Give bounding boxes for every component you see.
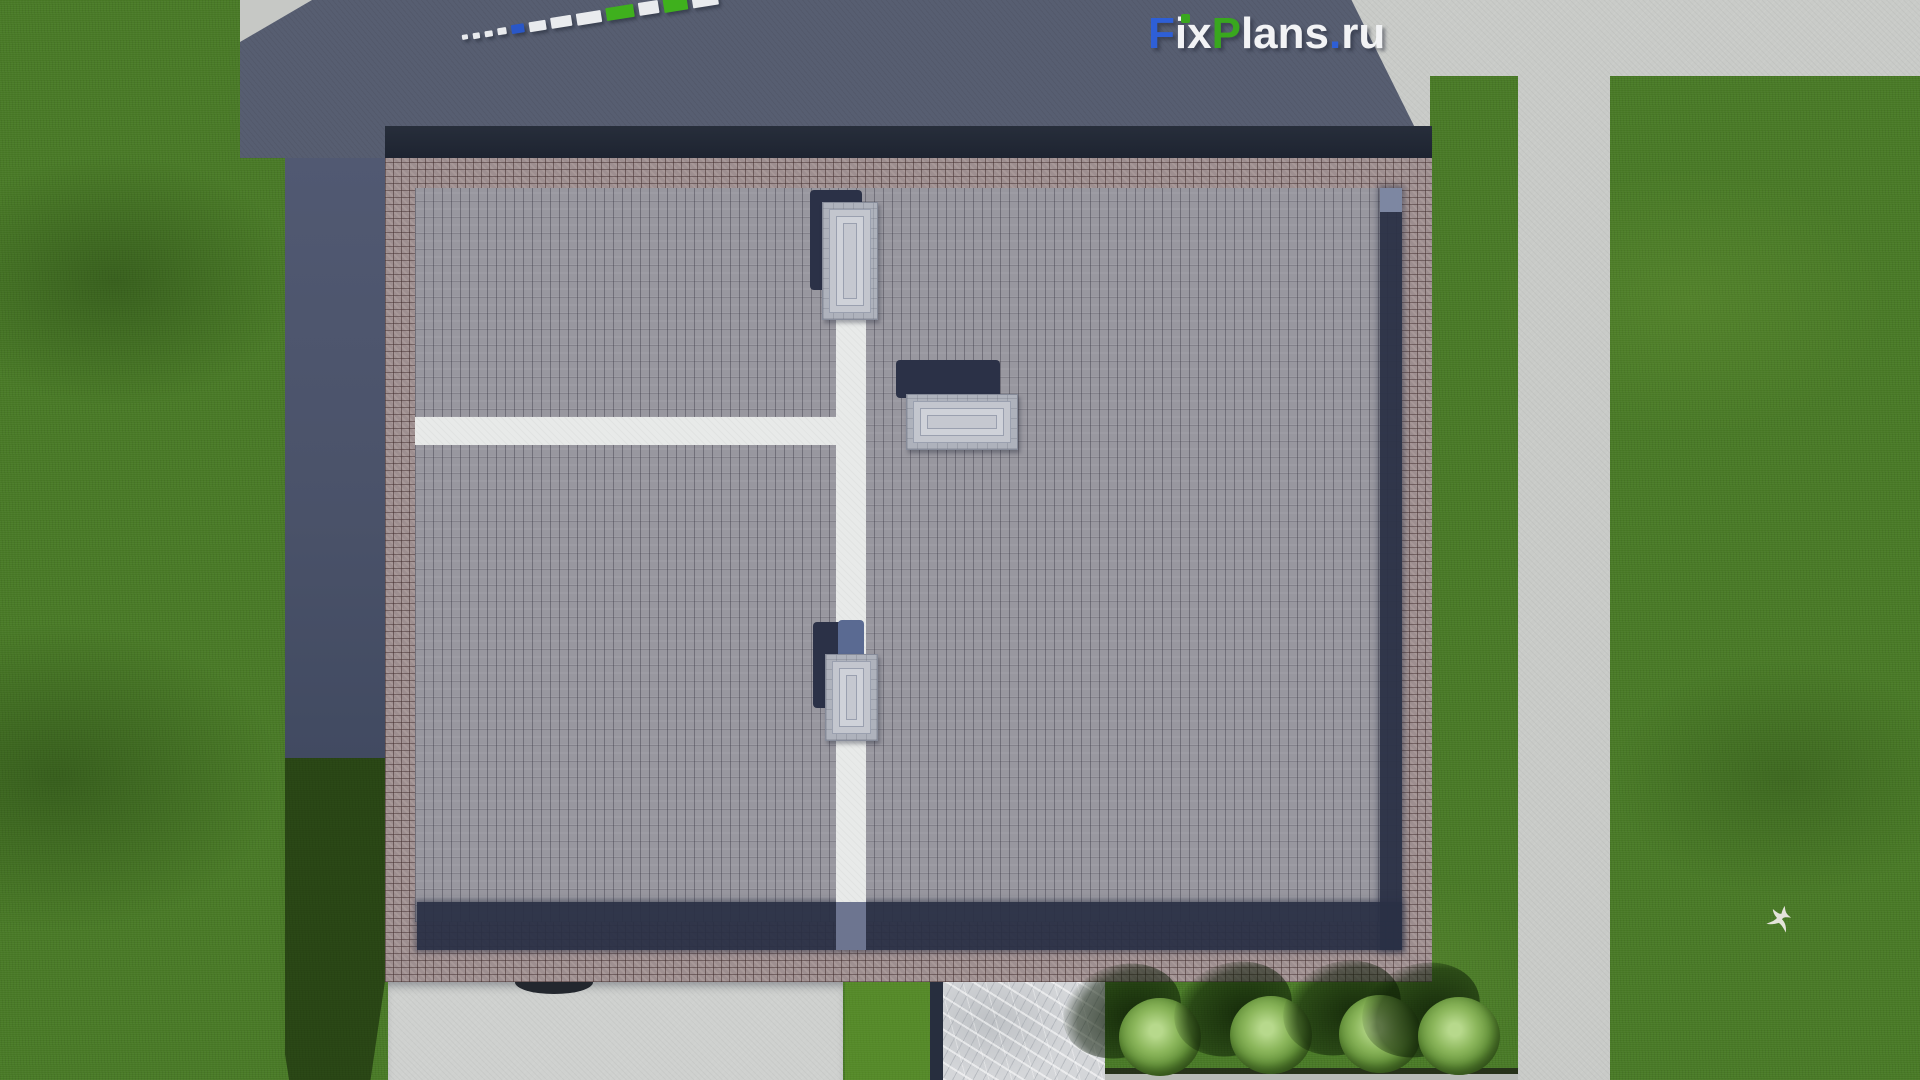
watermark-letter: ru (1341, 9, 1385, 58)
roof-top-shadow-band (385, 126, 1432, 160)
watermark-letter: . (1329, 9, 1341, 58)
parapet-shadow-bottom (417, 902, 1402, 950)
scale-bar-segment (550, 15, 572, 29)
skylight-frame (839, 668, 864, 727)
bush (1418, 997, 1500, 1075)
scale-bar-segment (528, 19, 546, 32)
skylight-2-shadow (896, 360, 1000, 398)
roof-path-in-shadow (836, 902, 866, 950)
roof-path-vertical (836, 318, 866, 902)
skylight-frame (920, 408, 1004, 436)
building-shadow-left (285, 158, 385, 758)
bottom-grass-strip (845, 982, 930, 1080)
right-sidewalk (1518, 0, 1610, 1080)
skylight-1 (822, 202, 878, 320)
skylight-frame (832, 661, 871, 734)
watermark-letter: lans (1241, 9, 1329, 58)
fixplans-watermark: FixPlans.ru (1148, 12, 1385, 56)
skylight-glass (843, 223, 857, 299)
scale-bar-segment (497, 27, 507, 35)
scale-bar-segment (462, 34, 469, 40)
roof-tile-field (415, 188, 1402, 922)
scale-bar-segment (638, 0, 660, 16)
parapet-shadow-right (1380, 188, 1402, 950)
aerial-roof-render: FixPlans.ru (0, 0, 1920, 1080)
skylight-glass (846, 675, 857, 720)
scale-bar-segment (511, 23, 525, 34)
scale-bar-segment (484, 30, 493, 37)
grass-shadow-left (285, 758, 388, 1080)
scale-bar-segment (472, 32, 480, 39)
roof-path-horizontal (415, 417, 847, 445)
top-sidewalk (1430, 0, 1920, 76)
scale-bar-segment (576, 10, 603, 26)
skylight-3 (825, 654, 878, 741)
skylight-glass (927, 415, 997, 429)
bottom-driveway (388, 982, 843, 1080)
skylight-frame (913, 401, 1011, 443)
skylight-frame (836, 216, 864, 306)
watermark-i-dot (1181, 14, 1190, 23)
parapet-corner-light (1380, 188, 1402, 212)
watermark-letter: F (1148, 9, 1175, 58)
walkway-edge-shadow (930, 982, 943, 1080)
skylight-frame (829, 209, 871, 313)
skylight-2 (906, 394, 1018, 450)
watermark-letter: P (1212, 9, 1241, 58)
